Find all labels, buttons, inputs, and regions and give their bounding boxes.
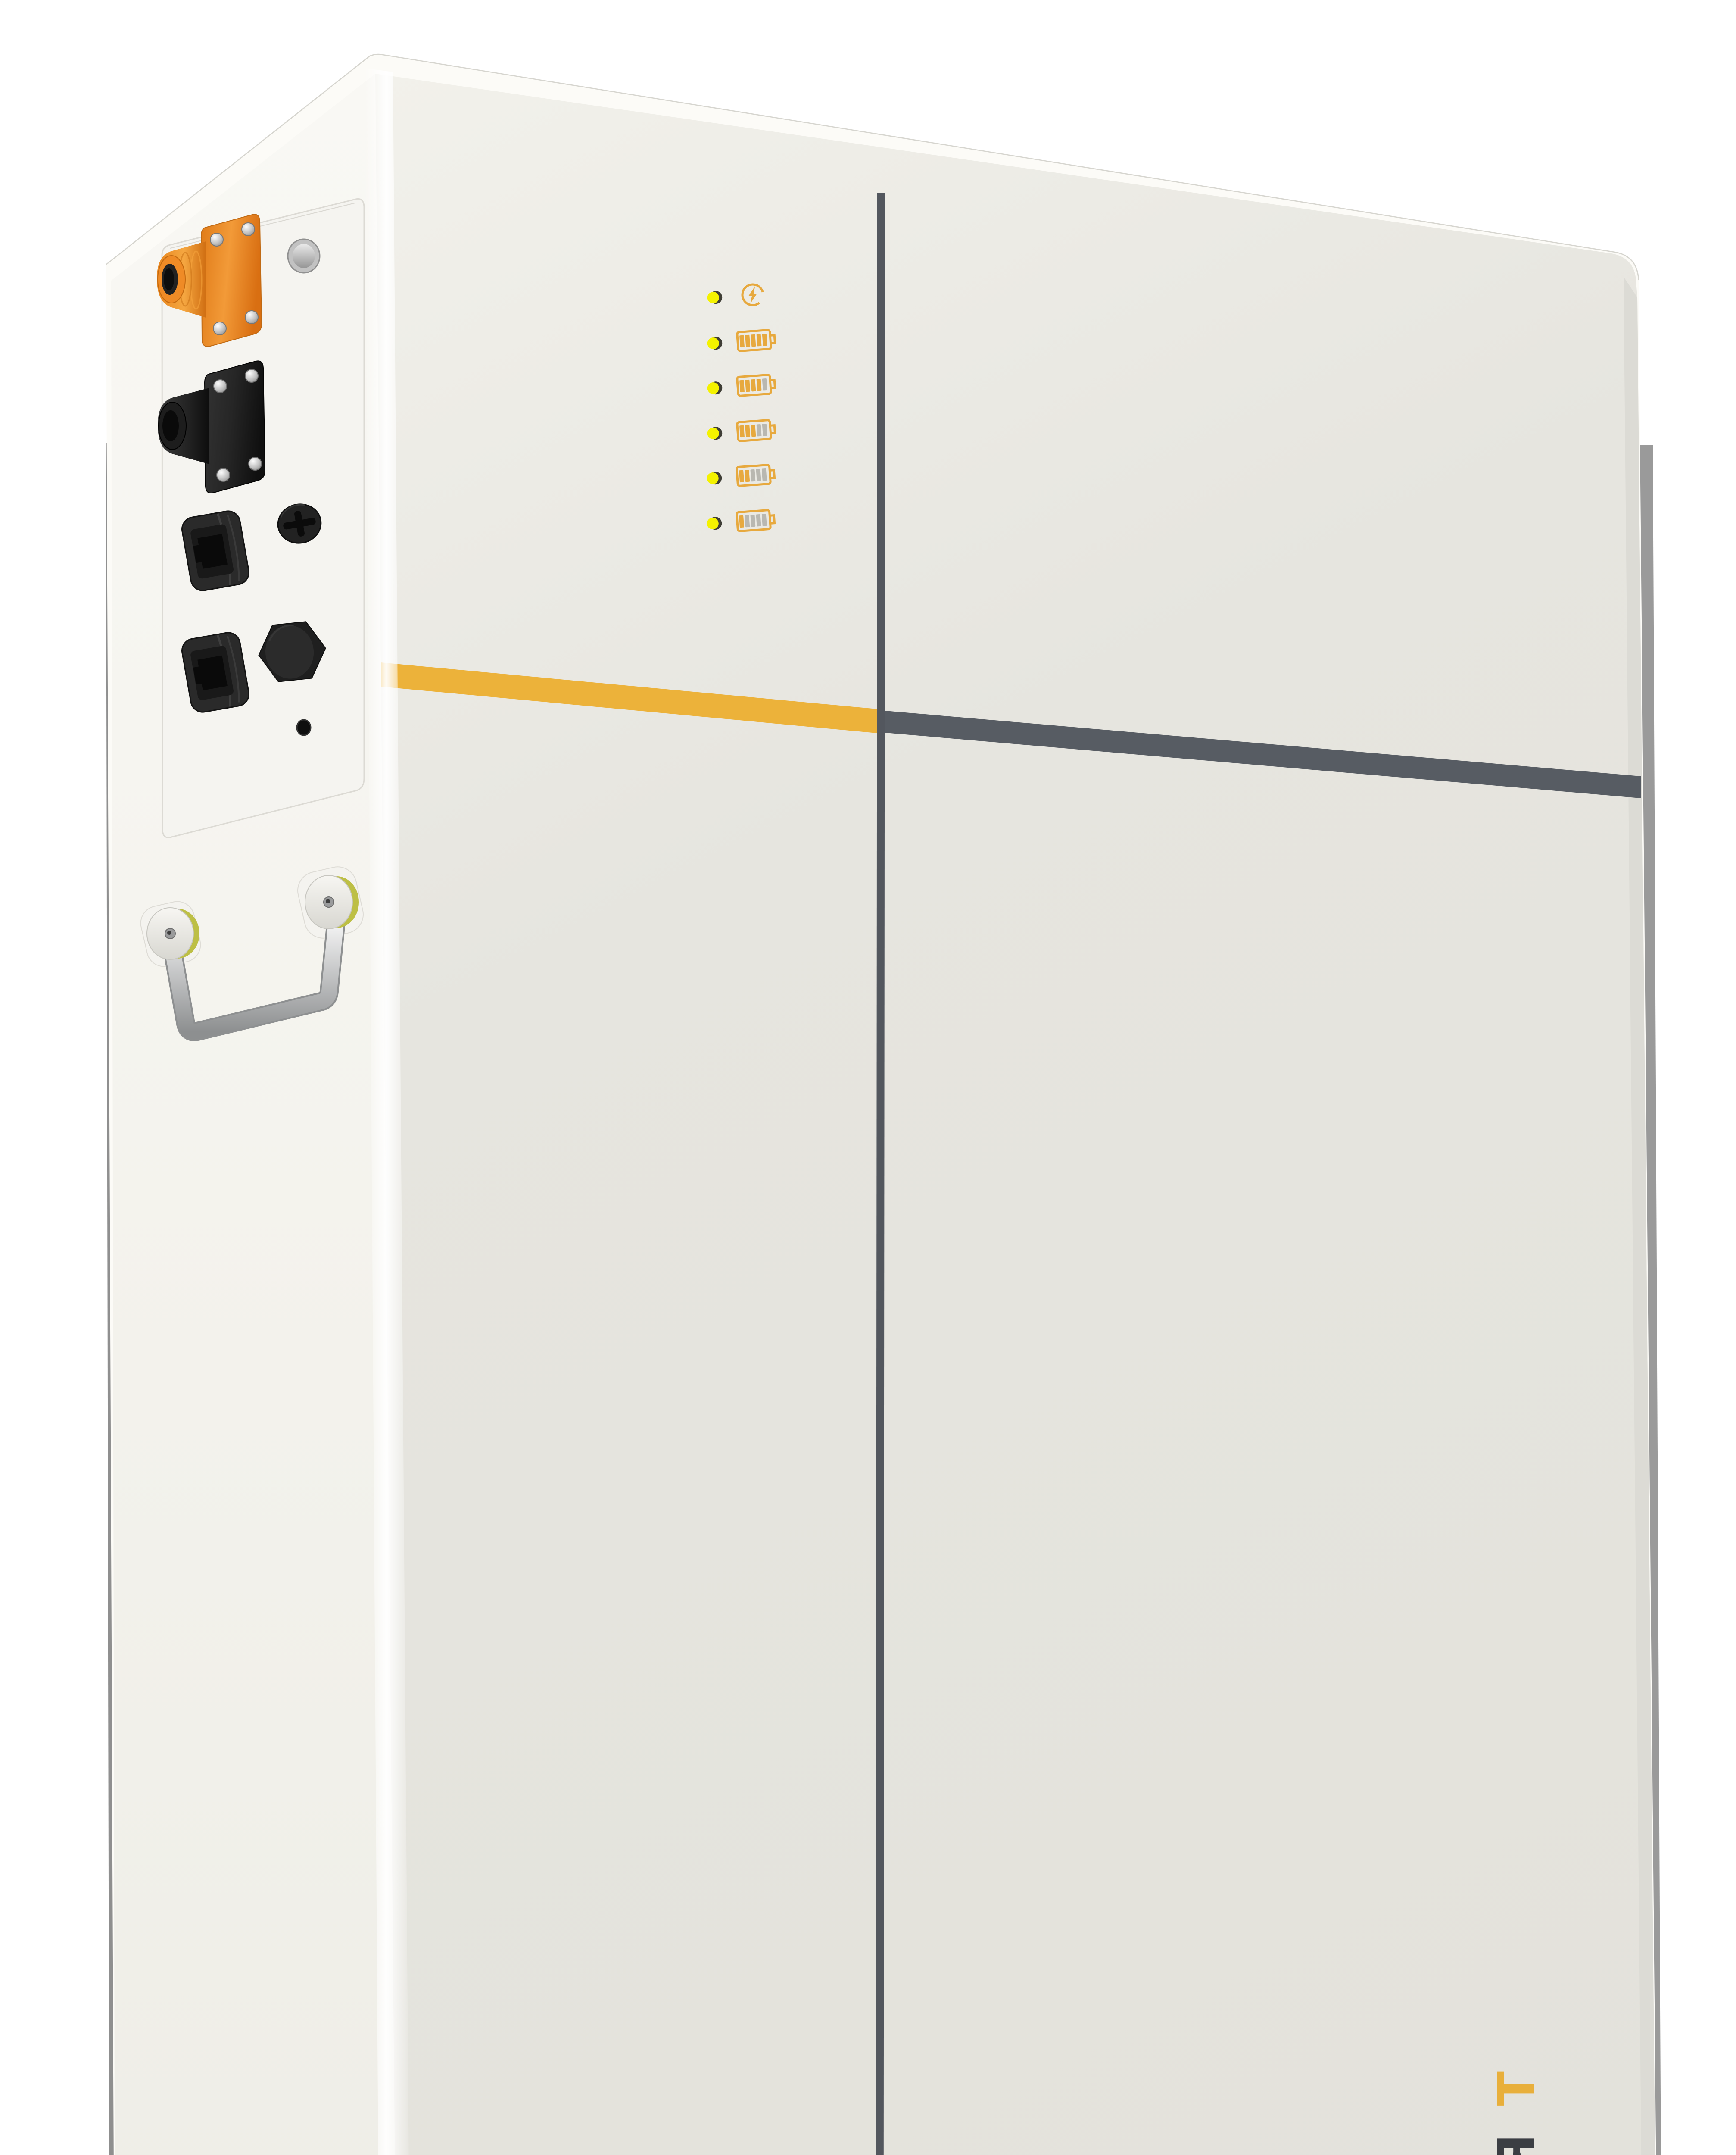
screw-icon (242, 223, 255, 236)
battery-product-render: TRIPLE POWER (0, 0, 1736, 2155)
brand-wordmark-triple: TRIPLE (1487, 2071, 1546, 2155)
screw-icon (210, 233, 223, 246)
front-face (375, 74, 1659, 2155)
screw-icon (245, 311, 258, 324)
dc-negative-opening (162, 410, 179, 441)
round-metal-port (288, 239, 320, 273)
handle-bracket-left (147, 908, 199, 959)
cabinet: TRIPLE POWER (106, 54, 1660, 2155)
screw-icon (249, 457, 262, 470)
pin-hole (297, 720, 311, 735)
screw-icon (213, 322, 226, 335)
screw-icon (214, 380, 227, 393)
handle-bracket-right (305, 875, 359, 929)
screw-icon (245, 369, 258, 382)
comm-port-lower (180, 631, 251, 714)
comm-port-upper (180, 509, 251, 592)
side-connector-panel (157, 199, 364, 837)
screw-icon (217, 468, 230, 481)
